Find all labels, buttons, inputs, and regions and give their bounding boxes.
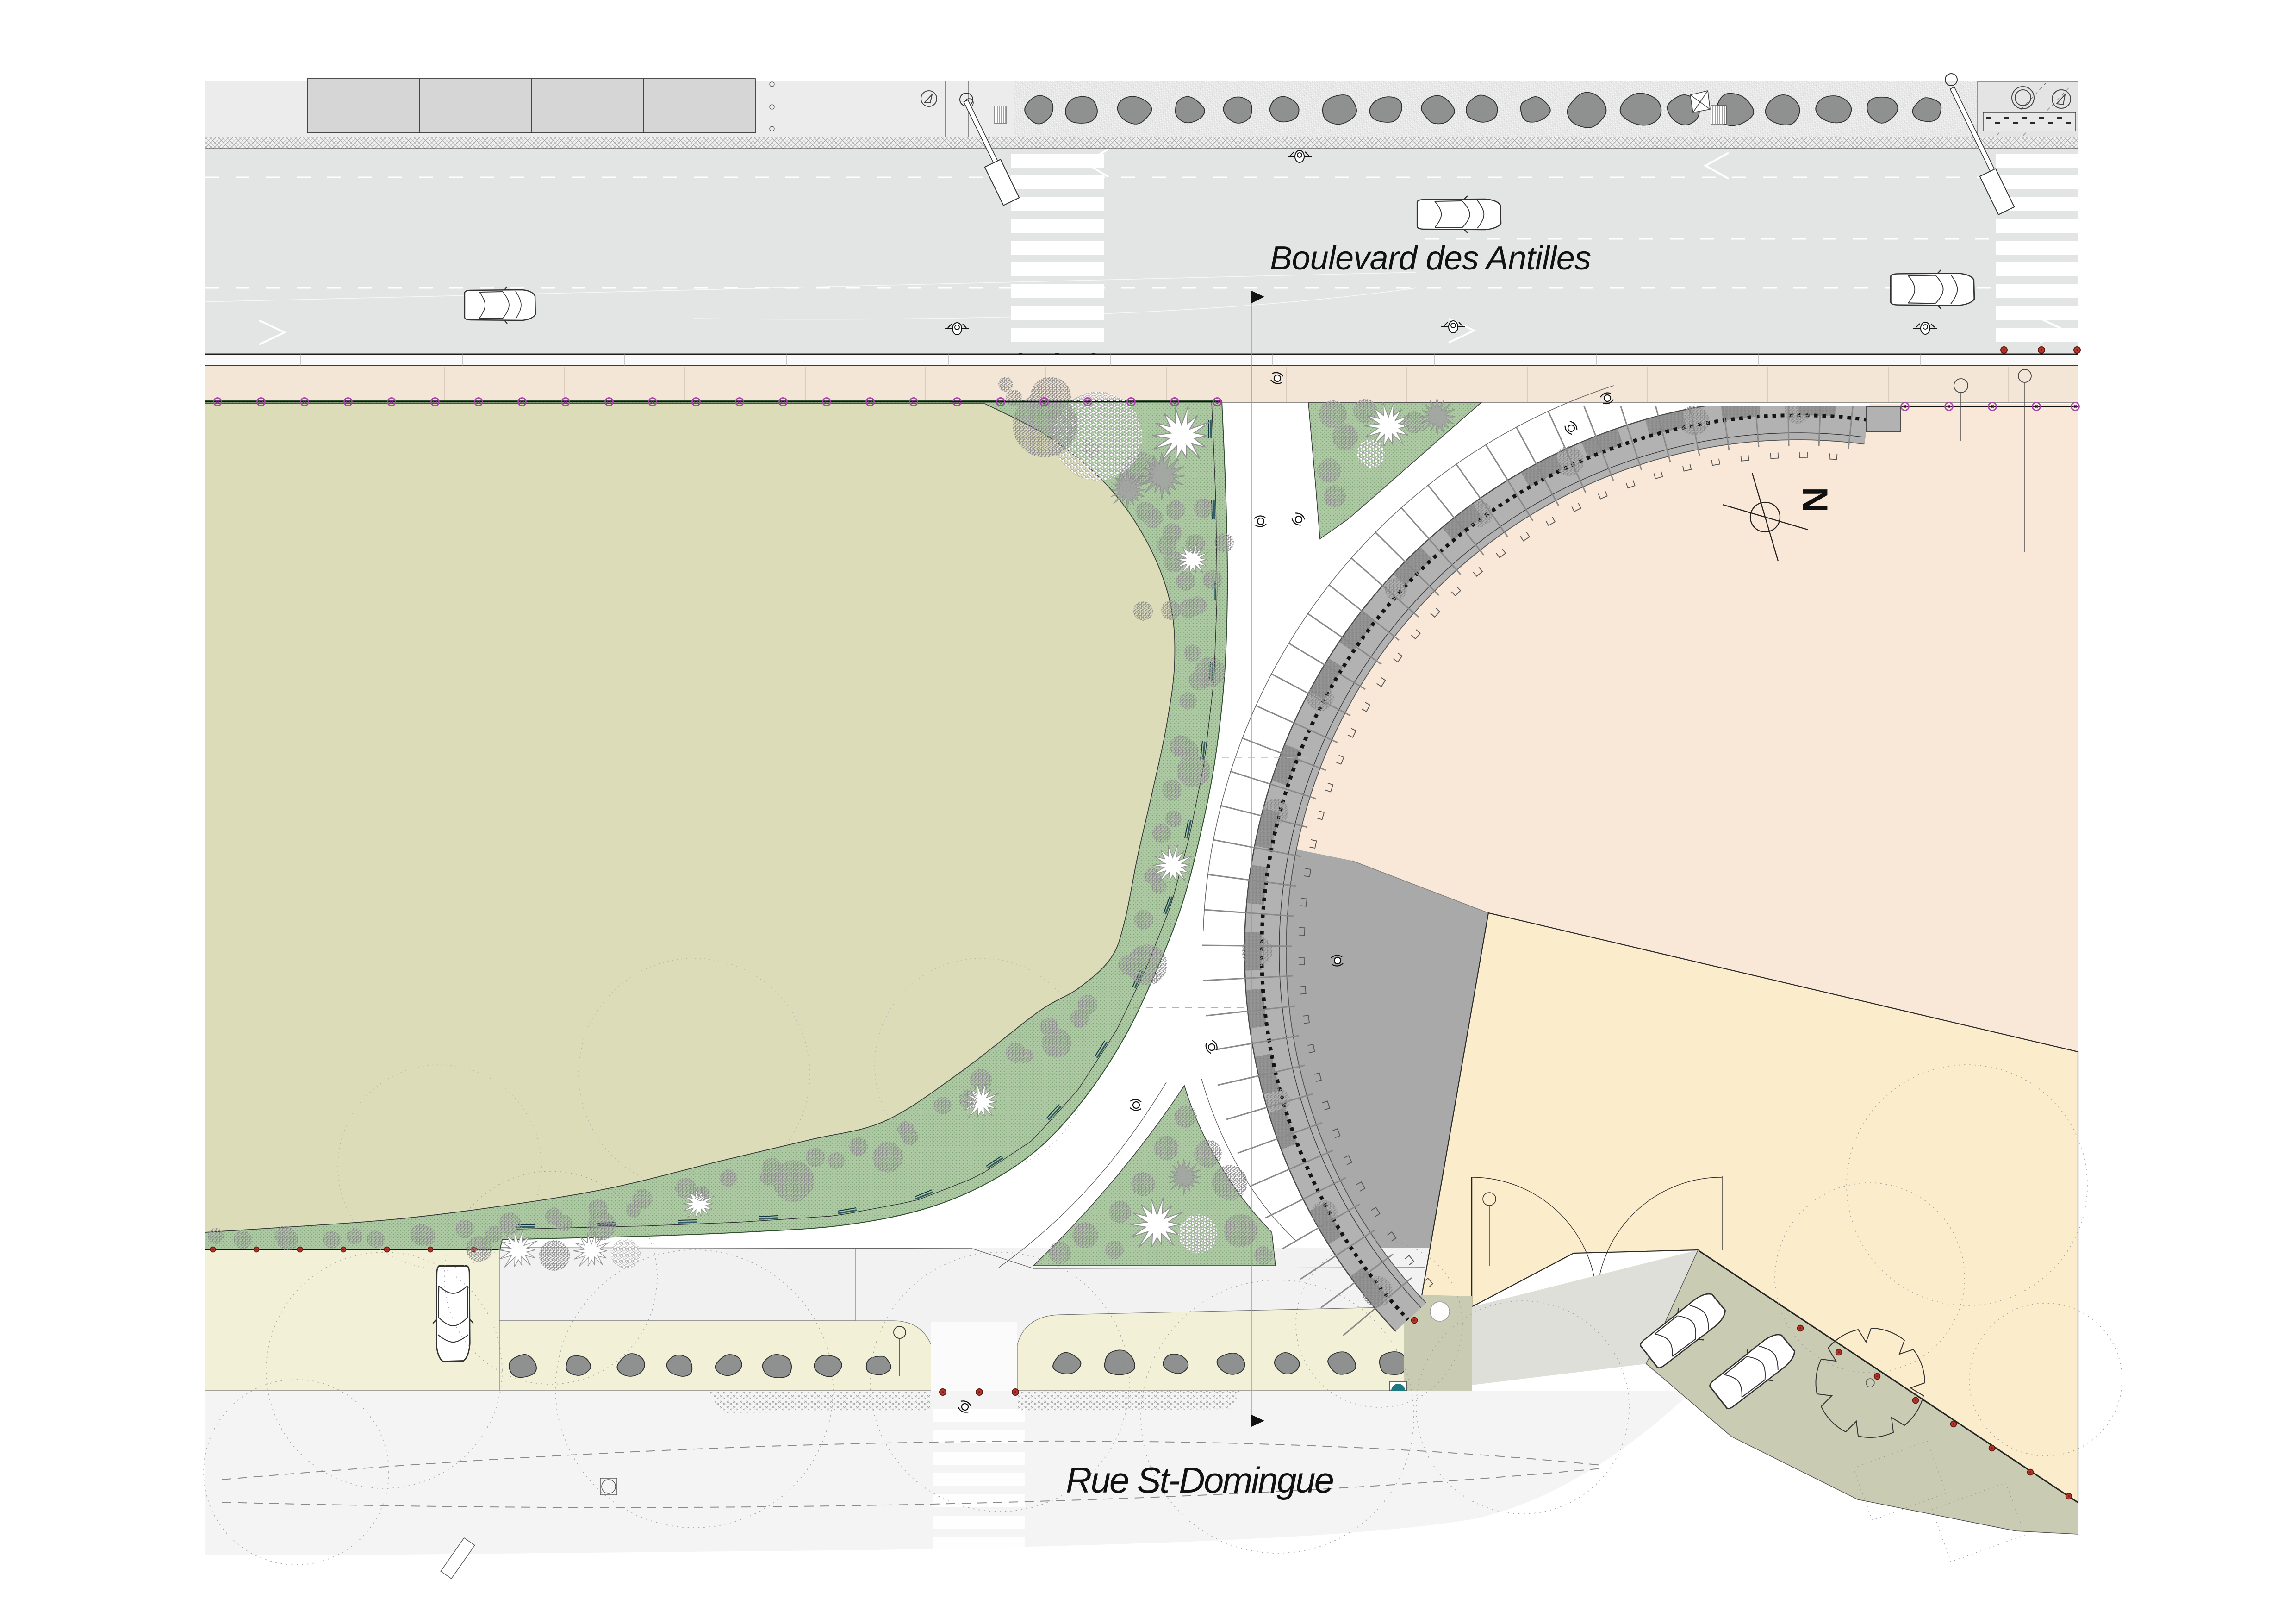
svg-text:N: N bbox=[1795, 487, 1835, 512]
svg-text:Rue St-Domingue: Rue St-Domingue bbox=[1066, 1460, 1334, 1500]
svg-text:Boulevard des Antilles: Boulevard des Antilles bbox=[1270, 240, 1591, 277]
